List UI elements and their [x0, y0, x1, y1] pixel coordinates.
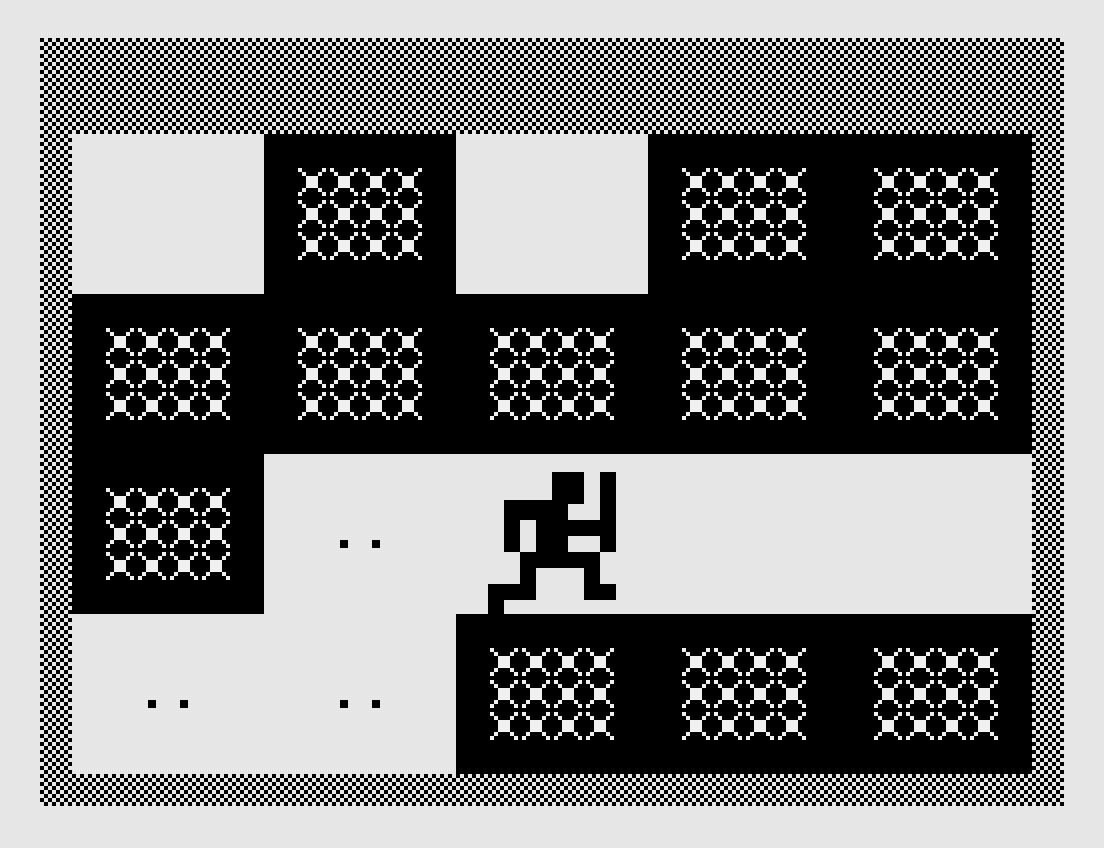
sprite-pixel-run: [600, 488, 616, 492]
sprite-pixel-run: [600, 504, 616, 508]
sprite-pixel-run: [520, 572, 536, 576]
sprite-pixel-run: [584, 576, 600, 580]
sprite-pixel-run: [600, 508, 616, 512]
sprite-pixel-run: [536, 520, 616, 524]
emulator-display: [0, 0, 1104, 848]
game-screen[interactable]: [40, 38, 1064, 806]
sprite-pixel-run: [520, 580, 536, 584]
sprite-pixel-run: [584, 596, 616, 600]
sprite-pixel-run: [552, 484, 584, 488]
sprite-pixel-run: [600, 540, 616, 544]
sprite-pixel-run: [600, 472, 616, 476]
sprite-pixel-run: [600, 480, 616, 484]
sprite-pixel-run: [504, 528, 520, 532]
sprite-pixel-run: [552, 472, 584, 476]
sprite-pixel-run: [504, 516, 568, 520]
sprite-pixel-run: [504, 508, 568, 512]
sprite-pixel-run: [488, 584, 536, 588]
sprite-pixel-run: [520, 568, 536, 572]
eye-dot: [340, 700, 348, 708]
sprite-pixel-run: [584, 572, 600, 576]
sprite-pixel-run: [488, 604, 504, 608]
sprite-pixel-run: [536, 528, 616, 532]
sprite-pixel-run: [600, 536, 616, 540]
sprite-pixel-run: [584, 584, 616, 588]
sprite-pixel-run: [584, 588, 616, 592]
sprite-pixel-run: [520, 560, 600, 564]
sprite-pixel-run: [488, 612, 504, 616]
eye-dot: [372, 700, 380, 708]
sprite-pixel-run: [520, 564, 600, 568]
sprite-pixel-run: [600, 544, 616, 548]
sprite-pixel-run: [600, 492, 616, 496]
sprite-pixel-run: [600, 484, 616, 488]
wall-block: [456, 614, 1032, 774]
eye-dot: [372, 540, 380, 548]
wall-block: [648, 134, 1032, 294]
wall-block: [72, 454, 264, 614]
sprite-pixel-run: [552, 480, 584, 484]
sprite-pixel-run: [536, 540, 568, 544]
sprite-pixel-run: [536, 532, 616, 536]
sprite-pixel-run: [520, 556, 600, 560]
sprite-pixel-run: [504, 520, 520, 524]
checker-border: [40, 134, 72, 774]
sprite-pixel-run: [520, 552, 600, 556]
sprite-pixel-run: [504, 524, 520, 528]
sprite-pixel-run: [520, 576, 536, 580]
sprite-pixel-run: [600, 476, 616, 480]
sprite-pixel-run: [536, 544, 568, 548]
sprite-pixel-run: [600, 500, 616, 504]
sprite-pixel-run: [488, 596, 536, 600]
eye-dot: [180, 700, 188, 708]
sprite-pixel-run: [600, 548, 616, 552]
sprite-pixel-run: [584, 592, 616, 596]
sprite-pixel-run: [600, 512, 616, 516]
checker-border: [40, 38, 1064, 134]
eye-dot: [148, 700, 156, 708]
sprite-pixel-run: [536, 548, 568, 552]
sprite-pixel-run: [504, 532, 520, 536]
sprite-pixel-run: [504, 512, 568, 516]
eye-dot: [340, 540, 348, 548]
sprite-pixel-run: [552, 496, 584, 500]
checker-border: [1032, 134, 1064, 774]
sprite-pixel-run: [600, 496, 616, 500]
wall-block: [264, 134, 456, 294]
sprite-pixel-run: [552, 492, 584, 496]
sprite-pixel-run: [488, 588, 536, 592]
sprite-pixel-run: [584, 568, 600, 572]
sprite-pixel-run: [504, 500, 584, 504]
sprite-pixel-run: [504, 544, 520, 548]
sprite-pixel-run: [552, 476, 584, 480]
sprite-pixel-run: [552, 488, 584, 492]
sprite-pixel-run: [504, 536, 520, 540]
sprite-pixel-run: [536, 536, 568, 540]
sprite-pixel-run: [536, 524, 616, 528]
sprite-pixel-run: [504, 548, 520, 552]
sprite-pixel-run: [488, 608, 504, 612]
checker-border: [40, 774, 1064, 806]
sprite-pixel-run: [584, 580, 600, 584]
sprite-pixel-run: [504, 540, 520, 544]
sprite-pixel-run: [488, 592, 536, 596]
sprite-pixel-run: [488, 600, 504, 604]
sprite-pixel-run: [504, 504, 568, 508]
sprite-pixel-run: [600, 516, 616, 520]
